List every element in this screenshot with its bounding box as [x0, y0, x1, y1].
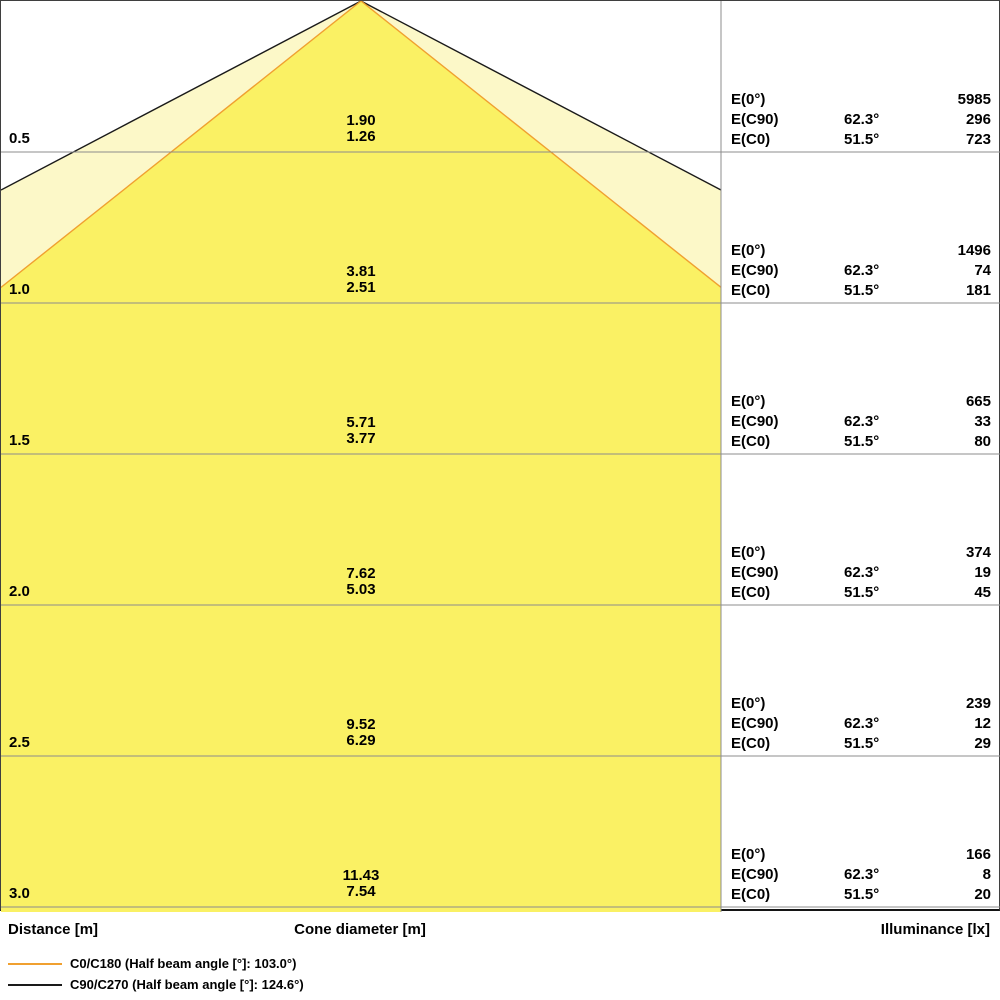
cone-chart-area: 0.51.90 1.26E(0°) E(C90) E(C0)62.3° 51.5…	[0, 0, 1000, 911]
cone-diameter-values-0.5: 1.90 1.26	[261, 113, 461, 145]
cone-diameter-values-1.0: 3.81 2.51	[261, 264, 461, 296]
distance-label-3.0: 3.0	[9, 886, 30, 902]
legend-label-c90-c270: C90/C270 (Half beam angle [°]: 124.6°)	[70, 976, 304, 993]
cone-diameter-values-2.0: 7.62 5.03	[261, 566, 461, 598]
illuminance-row-names-3.0: E(0°) E(C90) E(C0)	[731, 845, 779, 905]
illuminance-row-names-1.5: E(0°) E(C90) E(C0)	[731, 392, 779, 452]
legend-label-c0-c180: C0/C180 (Half beam angle [°]: 103.0°)	[70, 955, 296, 972]
light-cone-diagram-page: 0.51.90 1.26E(0°) E(C90) E(C0)62.3° 51.5…	[0, 0, 1000, 1000]
legend-item-c90-c270: C90/C270 (Half beam angle [°]: 124.6°)	[0, 976, 1000, 993]
distance-label-1.5: 1.5	[9, 433, 30, 449]
distance-axis-label: Distance [m]	[8, 921, 98, 938]
illuminance-row-names-2.0: E(0°) E(C90) E(C0)	[731, 543, 779, 603]
illuminance-row-values-1.5: 665 33 80	[821, 392, 991, 452]
illuminance-axis-label: Illuminance [lx]	[800, 921, 990, 938]
cone-diameter-values-2.5: 9.52 6.29	[261, 717, 461, 749]
c0-c180-line-swatch	[8, 963, 62, 965]
illuminance-row-values-0.5: 5985 296 723	[821, 90, 991, 150]
illuminance-row-values-2.5: 239 12 29	[821, 694, 991, 754]
legend-item-c0-c180: C0/C180 (Half beam angle [°]: 103.0°)	[0, 955, 1000, 972]
distance-label-0.5: 0.5	[9, 131, 30, 147]
distance-label-2.0: 2.0	[9, 584, 30, 600]
illuminance-row-values-3.0: 166 8 20	[821, 845, 991, 905]
distance-label-1.0: 1.0	[9, 282, 30, 298]
distance-label-2.5: 2.5	[9, 735, 30, 751]
illuminance-row-values-1.0: 1496 74 181	[821, 241, 991, 301]
cone-diameter-axis-label: Cone diameter [m]	[260, 921, 460, 938]
illuminance-row-names-2.5: E(0°) E(C90) E(C0)	[731, 694, 779, 754]
illuminance-row-names-1.0: E(0°) E(C90) E(C0)	[731, 241, 779, 301]
illuminance-row-names-0.5: E(0°) E(C90) E(C0)	[731, 90, 779, 150]
c90-c270-line-swatch	[8, 984, 62, 986]
cone-diameter-values-3.0: 11.43 7.54	[261, 868, 461, 900]
cone-diameter-values-1.5: 5.71 3.77	[261, 415, 461, 447]
illuminance-row-values-2.0: 374 19 45	[821, 543, 991, 603]
